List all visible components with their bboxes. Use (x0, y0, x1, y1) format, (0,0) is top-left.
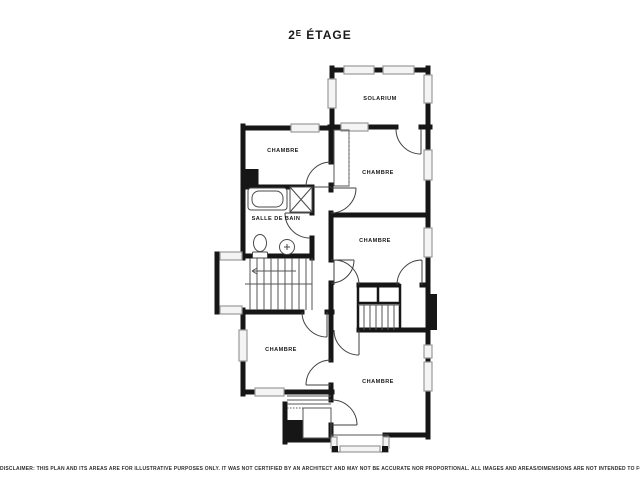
secondary-staircase (358, 305, 400, 330)
bathroom-fixtures (248, 187, 312, 258)
window-solarium-top-left (344, 66, 374, 74)
floor-plan-page: 2ᴱ ÉTAGE (0, 0, 640, 480)
floor-plan: SOLARIUM CHAMBRE CHAMBRE SALLE DE BAIN C… (0, 0, 640, 480)
door-chambre-bottom-right-side (332, 400, 357, 425)
main-staircase (245, 258, 312, 310)
toilet-icon (253, 235, 268, 259)
stair-direction-arrow (252, 268, 296, 274)
room-label-chambre-right: CHAMBRE (359, 238, 391, 244)
bathtub-icon (248, 188, 287, 210)
door-chambre-mid-top (396, 129, 421, 154)
walls (217, 68, 437, 442)
windows (220, 66, 432, 396)
window-solarium-top-right (383, 66, 414, 74)
door-chambre-right-left (334, 260, 359, 285)
window-stair-landing-bottom (220, 306, 242, 314)
door-chambre-bottom-left-top (302, 312, 327, 337)
shower-icon (290, 187, 312, 212)
window-stair-landing-top (220, 252, 242, 260)
window-chambre-right (424, 228, 432, 257)
room-labels: SOLARIUM CHAMBRE CHAMBRE SALLE DE BAIN C… (252, 96, 397, 385)
storage-closet (303, 408, 331, 438)
window-chambre-top-left (291, 124, 319, 132)
window-solarium-right (424, 75, 432, 103)
chimney-block-right (430, 294, 437, 330)
window-chambre-bottom-right-1 (424, 345, 432, 358)
closet (334, 130, 349, 186)
room-label-salle-de-bain: SALLE DE BAIN (252, 216, 301, 222)
window-chambre-bottom-right-2 (424, 362, 432, 391)
room-label-chambre-mid-right: CHAMBRE (362, 170, 394, 176)
door-chambre-right-right (397, 260, 422, 285)
room-label-chambre-top-left: CHAMBRE (267, 148, 299, 154)
bay-window (331, 435, 389, 452)
storage-block (285, 420, 303, 440)
door-chambre-bottom-right-top (334, 330, 359, 355)
window-chambre-mid-right (424, 150, 432, 180)
window-solarium-left (328, 79, 336, 108)
room-label-chambre-bottom-left: CHAMBRE (265, 347, 297, 353)
disclaimer-text: DISCLAIMER: THIS PLAN AND ITS AREAS ARE … (0, 466, 640, 472)
room-label-solarium: SOLARIUM (363, 96, 396, 102)
window-chambre-bottom-left-side (239, 330, 247, 361)
room-label-chambre-bottom-right: CHAMBRE (362, 379, 394, 385)
chimney-block-left (246, 169, 259, 187)
door-chambre-top-left (306, 162, 331, 187)
sink-icon (280, 240, 295, 255)
door-chambre-bottom-left-bottom (306, 360, 331, 385)
window-chambre-bottom-left-bottom (255, 388, 284, 396)
door-chambre-mid-left (331, 188, 356, 213)
